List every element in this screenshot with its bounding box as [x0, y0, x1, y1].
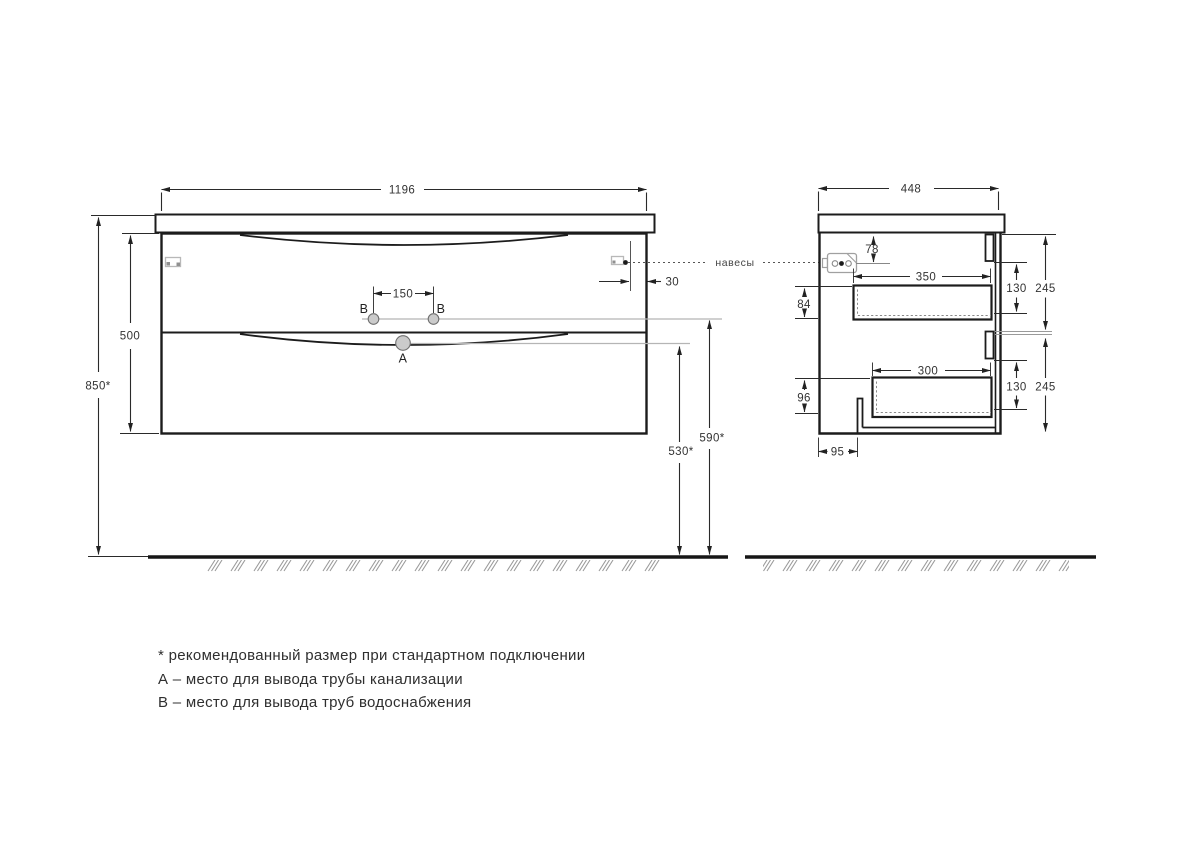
upper-section-height-label: 245 [1035, 283, 1055, 295]
note-a: А – место для вывода трубы канализации [158, 668, 585, 692]
vanity-dimension-drawing: навесы 1196 850* 500 150 30 530* 59 [0, 0, 1200, 849]
front-width-label: 1196 [389, 185, 415, 197]
upper-drawer-box [854, 286, 992, 320]
water-holes-spacing-label: 150 [393, 289, 413, 301]
note-asterisk: * рекомендованный размер при стандартном… [158, 644, 585, 668]
side-countertop [819, 215, 1005, 233]
hangers-callout-label: навесы [715, 257, 754, 269]
upper-drawer-front-rail [986, 235, 994, 262]
front-countertop [156, 215, 655, 233]
lower-drawer-front-rail [986, 332, 994, 359]
floor [148, 557, 1096, 572]
technical-drawing-page: навесы 1196 850* 500 150 30 530* 59 [0, 0, 1200, 849]
hole-b-right-label: B [437, 302, 446, 316]
hanger-offset-label: 30 [666, 277, 680, 289]
hole-b-left-label: B [360, 302, 369, 316]
water-hole-left [368, 314, 379, 325]
upper-drawer-depth-label: 350 [916, 272, 936, 284]
front-overall-height-label: 850* [85, 381, 110, 393]
right-hanger-icon [612, 241, 631, 291]
front-body-height-label: 500 [120, 331, 140, 343]
hanger-drop-label: 78 [865, 244, 879, 256]
water-outlet-height-label: 590* [699, 433, 724, 445]
floor-hatch-side [763, 560, 1069, 572]
side-depth-label: 448 [901, 184, 921, 196]
note-b: В – место для вывода труб водоснабжения [158, 691, 585, 715]
side-view-cabinet [819, 215, 1005, 434]
side-pipe-notch [858, 399, 863, 434]
left-hanger-icon [166, 258, 181, 267]
upper-drawer-inner-dashed [858, 290, 992, 316]
lower-drawer-back-height-label: 96 [797, 393, 811, 405]
footnotes: * рекомендованный размер при стандартном… [158, 644, 585, 715]
lower-section-height-label: 245 [1035, 382, 1055, 394]
lower-drawer-front-height-label: 130 [1006, 382, 1026, 394]
wall-bracket-icon [823, 254, 858, 273]
upper-drawer-front-height-label: 130 [1006, 283, 1026, 295]
hole-a-label: A [399, 352, 408, 366]
drain-hole [396, 336, 411, 351]
bottom-recess-depth-label: 95 [831, 447, 845, 459]
drawer-gap-guide-lines [995, 332, 1052, 335]
lower-drawer-depth-label: 300 [918, 366, 938, 378]
lower-drawer-box [873, 378, 992, 418]
lower-drawer-inner-dashed [877, 382, 992, 413]
upper-drawer-back-height-label: 84 [797, 299, 811, 311]
drain-outlet-height-label: 530* [668, 446, 693, 458]
floor-hatch-front [202, 560, 662, 572]
front-view-cabinet [156, 215, 655, 434]
front-upper-drawer-curve [240, 235, 568, 245]
